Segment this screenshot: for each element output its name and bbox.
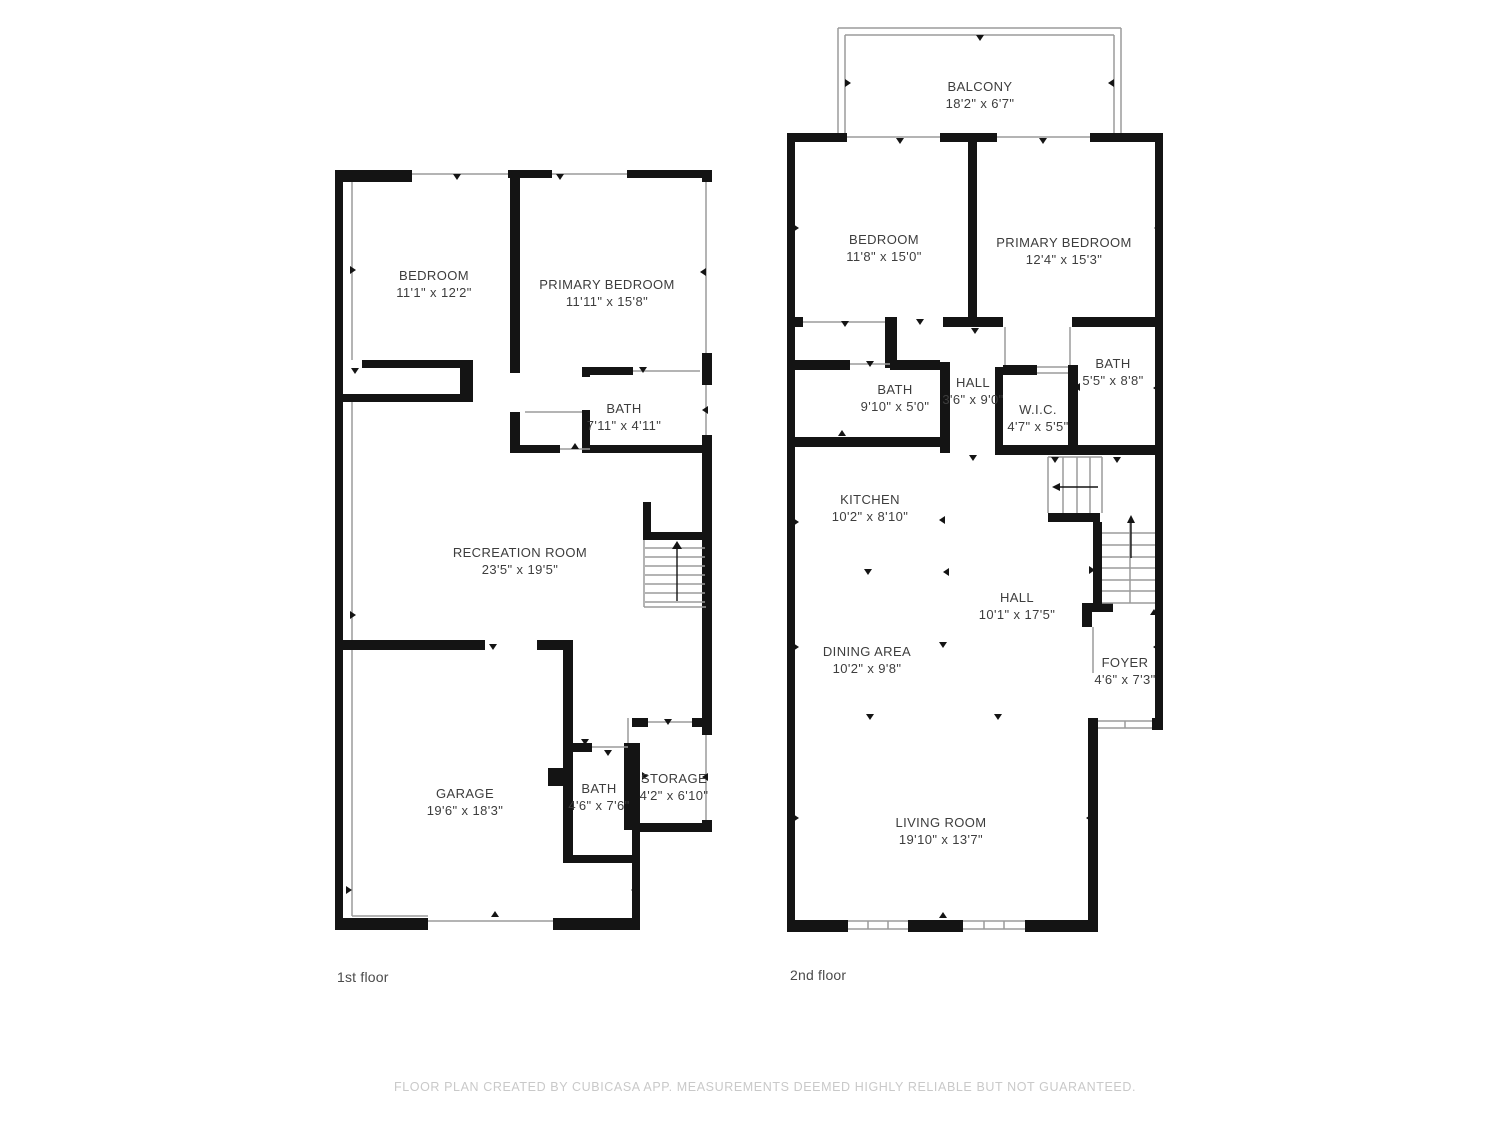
room-label-garage-dims: 19'6" x 18'3" [427,803,504,818]
room-label-bedroom-2f-dims: 11'8" x 15'0" [846,249,922,264]
staircase-first-floor [644,540,706,607]
room-label-bath-right-2f-dims: 5'5" x 8'8" [1082,373,1143,388]
floor-plan-image: BEDROOM 11'1" x 12'2" PRIMARY BEDROOM 11… [0,0,1500,1125]
stairs-up-arrow-icon [672,541,682,601]
room-label-kitchen-dims: 10'2" x 8'10" [832,509,909,524]
stairs-up-arrow-icon [1127,515,1135,558]
room-label-bath-upper-1f-dims: 7'11" x 4'11" [587,418,662,433]
room-label-balcony-dims: 18'2" x 6'7" [946,96,1015,111]
floor-plan-page: BEDROOM 11'1" x 12'2" PRIMARY BEDROOM 11… [0,0,1500,1125]
footer-disclaimer: FLOOR PLAN CREATED BY CUBICASA APP. MEAS… [394,1080,1136,1094]
room-label-primary-bedroom-2f-name: PRIMARY BEDROOM [996,235,1132,250]
room-label-wic-dims: 4'7" x 5'5" [1007,419,1068,434]
room-label-primary-bedroom-2f-dims: 12'4" x 15'3" [1026,252,1103,267]
room-label-bath-left-2f-dims: 9'10" x 5'0" [861,399,930,414]
room-label-dining-area-name: DINING AREA [823,644,911,659]
room-label-balcony-name: BALCONY [948,79,1013,94]
room-labels-second-floor: BALCONY 18'2" x 6'7" BEDROOM 11'8" x 15'… [823,79,1156,847]
room-label-wic-name: W.I.C. [1019,402,1057,417]
room-label-hall-small-name: HALL [956,375,990,390]
room-labels-first-floor: BEDROOM 11'1" x 12'2" PRIMARY BEDROOM 11… [396,268,708,818]
room-label-bath-lower-1f-name: BATH [581,781,616,796]
room-label-recreation-room-name: RECREATION ROOM [453,545,587,560]
floor-label-1st: 1st floor [337,969,389,985]
room-label-storage-dims: 4'2" x 6'10" [640,788,709,803]
room-label-hall-small-dims: 3'6" x 9'0" [942,392,1003,407]
room-label-garage-name: GARAGE [436,786,494,801]
room-label-bath-left-2f-name: BATH [877,382,912,397]
room-label-bath-right-2f-name: BATH [1095,356,1130,371]
room-label-recreation-room-dims: 23'5" x 19'5" [482,562,559,577]
room-label-storage-name: STORAGE [641,771,707,786]
room-label-primary-bedroom-1f-dims: 11'11" x 15'8" [566,294,648,309]
room-label-bedroom-2f-name: BEDROOM [849,232,919,247]
room-label-hall-large-dims: 10'1" x 17'5" [979,607,1056,622]
first-floor-plan: BEDROOM 11'1" x 12'2" PRIMARY BEDROOM 11… [335,170,712,985]
room-label-bath-upper-1f-name: BATH [606,401,641,416]
room-label-kitchen-name: KITCHEN [840,492,900,507]
room-label-primary-bedroom-1f-name: PRIMARY BEDROOM [539,277,675,292]
room-label-living-room-dims: 19'10" x 13'7" [899,832,983,847]
stairs-left-arrow-icon [1052,483,1098,491]
room-label-foyer-name: FOYER [1102,655,1149,670]
room-label-bedroom-1f-name: BEDROOM [399,268,469,283]
room-label-living-room-name: LIVING ROOM [895,815,986,830]
room-label-foyer-dims: 4'6" x 7'3" [1094,672,1155,687]
room-label-dining-area-dims: 10'2" x 9'8" [833,661,902,676]
room-label-hall-large-name: HALL [1000,590,1034,605]
room-label-bedroom-1f-dims: 11'1" x 12'2" [396,285,472,300]
room-label-bath-lower-1f-dims: 4'6" x 7'6" [568,798,629,813]
floor-label-2nd: 2nd floor [790,967,846,983]
second-floor-plan: BALCONY 18'2" x 6'7" BEDROOM 11'8" x 15'… [787,28,1163,983]
